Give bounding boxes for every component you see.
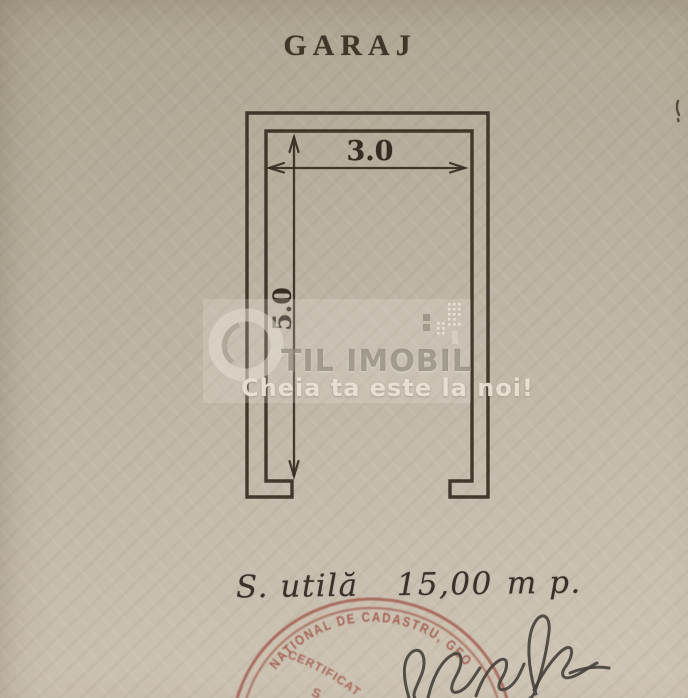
scanned-document: GARAJ 3.0 5.0 <box>0 0 688 698</box>
signature <box>0 0 688 698</box>
